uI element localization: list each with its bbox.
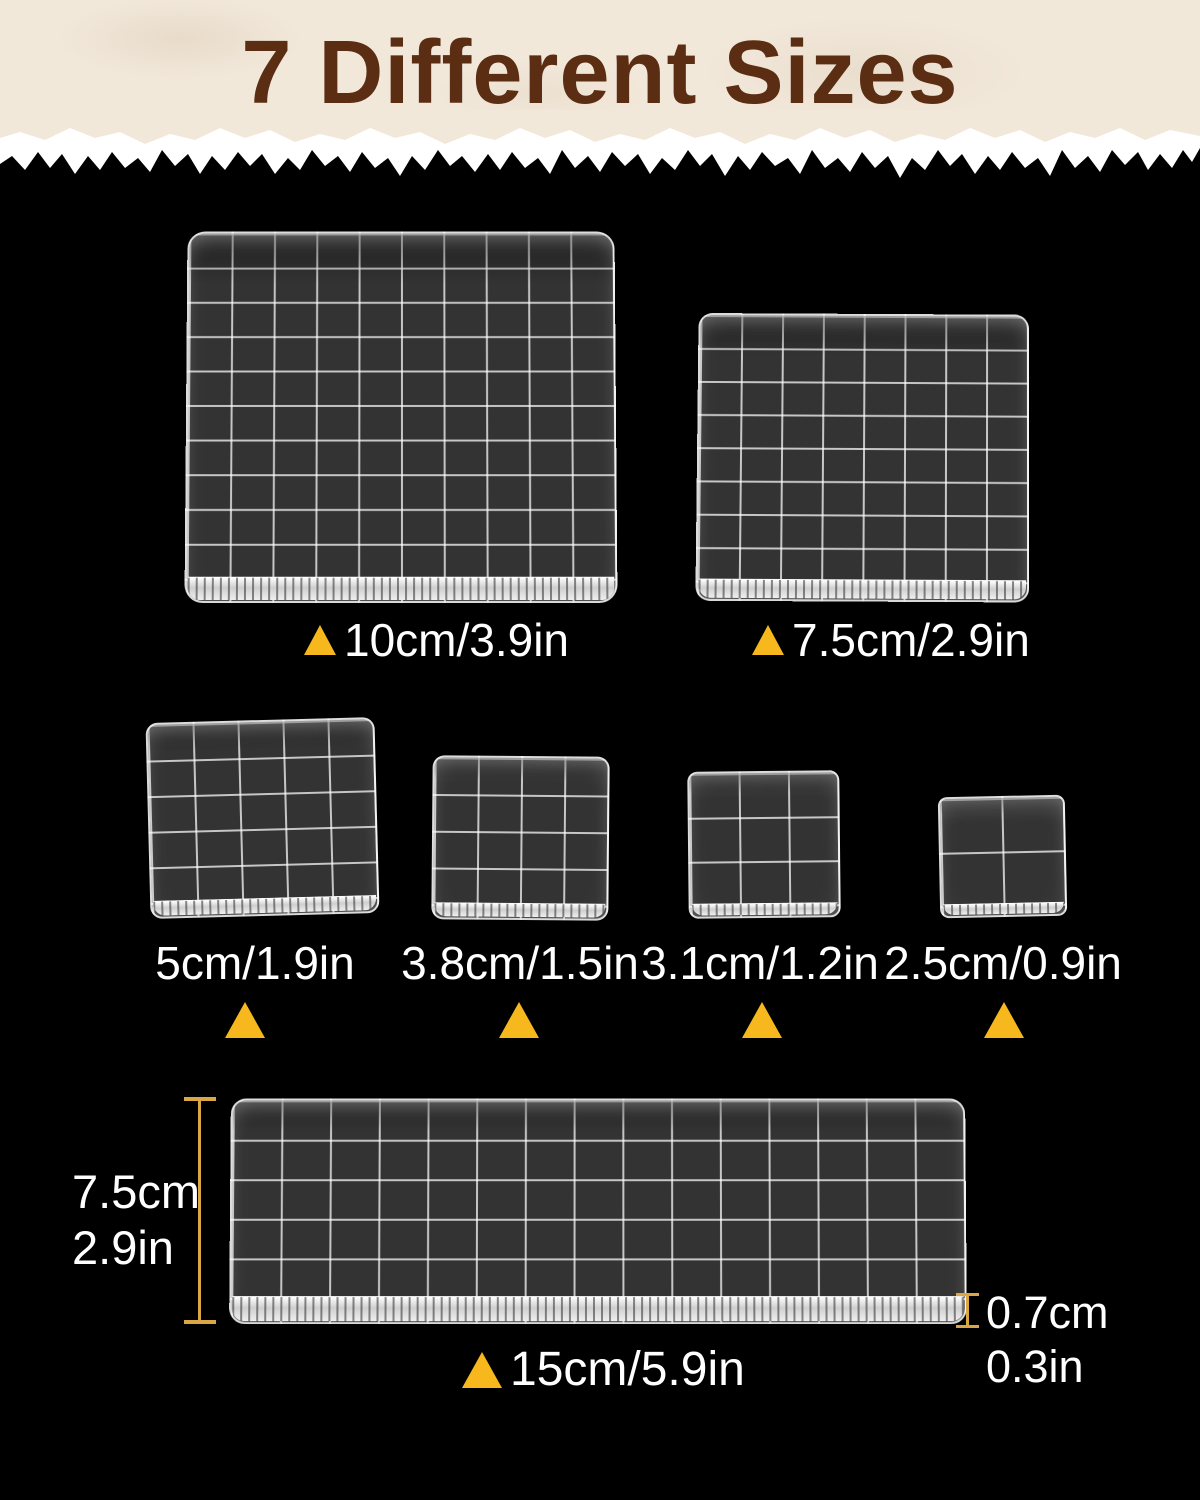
grid-face — [229, 1098, 967, 1324]
block-edge — [188, 577, 615, 600]
triangle-marker-icon — [742, 1002, 782, 1038]
size-label-3-1cm: 3.1cm/1.2in — [635, 938, 885, 988]
product-infographic: 7 Different Sizes — [0, 0, 1200, 1500]
triangle-marker-icon — [225, 1002, 265, 1038]
size-label-5cm: 5cm/1.9in — [130, 938, 380, 988]
block-edge — [943, 902, 1064, 916]
block-edge — [232, 1296, 964, 1321]
triangle-marker-icon — [984, 1002, 1024, 1038]
stamp-block-3-1cm — [687, 770, 841, 919]
stamp-block-3-8cm — [431, 755, 609, 921]
thickness-measure-line — [966, 1295, 969, 1326]
height-measure-label-cm: 7.5cm — [72, 1164, 200, 1220]
thickness-measure-label-in: 0.3in — [986, 1340, 1109, 1394]
grid-face — [184, 232, 617, 604]
stamp-block-10cm — [184, 232, 617, 604]
block-edge — [153, 895, 376, 916]
thickness-measure-cap — [956, 1325, 979, 1328]
stamp-block-7-5cm — [695, 313, 1029, 602]
size-label-7-5cm: 7.5cm/2.9in — [752, 616, 1030, 664]
block-edge — [698, 579, 1026, 600]
stamp-block-2-5cm — [938, 795, 1068, 919]
size-label-15cm: 15cm/5.9in — [462, 1346, 745, 1394]
title: 7 Different Sizes — [0, 22, 1200, 125]
triangle-marker-icon — [304, 625, 336, 655]
triangle-marker-icon — [462, 1352, 502, 1388]
size-label-text: 15cm/5.9in — [510, 1346, 745, 1394]
thickness-measure-cap — [956, 1293, 979, 1296]
size-label-10cm: 10cm/3.9in — [304, 616, 569, 664]
grid-face — [695, 313, 1029, 602]
thickness-measure-label-cm: 0.7cm — [986, 1286, 1109, 1340]
grid-face — [145, 717, 379, 919]
size-label-text: 10cm/3.9in — [344, 616, 569, 664]
triangle-marker-icon — [499, 1002, 539, 1038]
block-edge — [692, 902, 838, 916]
stamp-block-15cm — [229, 1098, 967, 1324]
block-edge — [434, 902, 605, 917]
grid-face — [431, 755, 609, 921]
size-label-3-8cm: 3.8cm/1.5in — [395, 938, 645, 988]
height-measure-label-in: 2.9in — [72, 1220, 200, 1276]
grid-face — [938, 795, 1068, 919]
thickness-measure-label: 0.7cm 0.3in — [986, 1286, 1109, 1394]
size-label-2-5cm: 2.5cm/0.9in — [878, 938, 1128, 988]
grid-face — [687, 770, 841, 919]
size-label-text: 7.5cm/2.9in — [792, 616, 1030, 664]
height-measure-label: 7.5cm 2.9in — [72, 1164, 200, 1276]
height-measure-cap — [184, 1097, 216, 1101]
triangle-marker-icon — [752, 625, 784, 655]
stamp-block-5cm — [145, 717, 379, 919]
height-measure-cap — [184, 1320, 216, 1324]
